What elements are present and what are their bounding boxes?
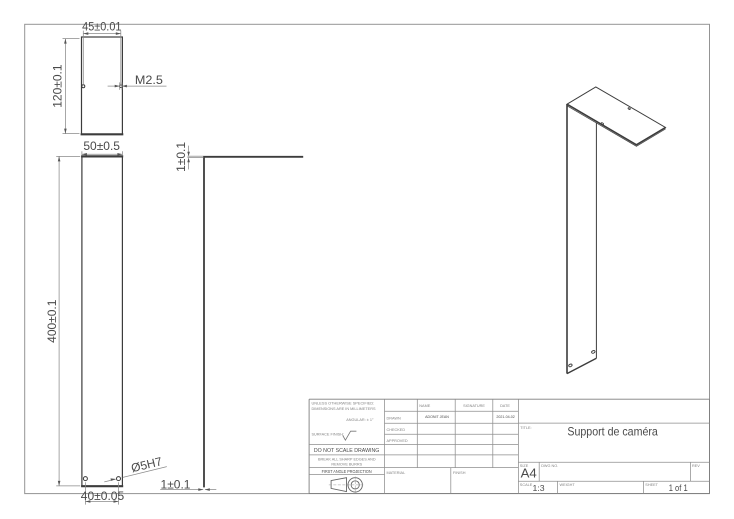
svg-text:MATERIAL: MATERIAL (387, 471, 406, 475)
svg-text:40±0.05: 40±0.05 (81, 489, 125, 503)
svg-text:1±0.1: 1±0.1 (161, 478, 191, 492)
svg-text:WEIGHT: WEIGHT (560, 483, 576, 487)
svg-text:SHEET: SHEET (645, 483, 658, 487)
svg-text:DO NOT SCALE DRAWING: DO NOT SCALE DRAWING (314, 448, 380, 454)
svg-text:REMOVE BURRS: REMOVE BURRS (331, 462, 362, 466)
svg-text:APPROVED: APPROVED (387, 439, 408, 443)
svg-text:DATE: DATE (500, 404, 510, 408)
svg-text:DRAWN: DRAWN (387, 417, 401, 421)
svg-text:SURFACE FINISH:: SURFACE FINISH: (312, 432, 345, 436)
svg-text:DWG NO.: DWG NO. (541, 464, 558, 468)
svg-text:FINISH: FINISH (453, 471, 466, 475)
svg-text:Support de caméra: Support de caméra (567, 424, 658, 438)
svg-text:ANGULAR: ± 1°: ANGULAR: ± 1° (346, 418, 374, 422)
svg-text:UNLESS OTHERWISE SPECIFIED:: UNLESS OTHERWISE SPECIFIED: (312, 401, 375, 405)
svg-text:FIRST ANGLE PROJECTION: FIRST ANGLE PROJECTION (322, 469, 372, 474)
svg-text:SIGNATURE: SIGNATURE (463, 404, 485, 408)
svg-text:120±0.1: 120±0.1 (51, 64, 65, 108)
svg-text:1±0.1: 1±0.1 (174, 142, 188, 172)
svg-text:REV: REV (692, 464, 700, 468)
svg-text:TITLE:: TITLE: (520, 426, 531, 430)
svg-text:DIMENSIONS ARE IN MILLIMETERS: DIMENSIONS ARE IN MILLIMETERS (312, 407, 376, 411)
svg-text:CHECKED: CHECKED (387, 428, 406, 432)
svg-text:45±0.01: 45±0.01 (82, 19, 122, 33)
svg-text:50±0.5: 50±0.5 (83, 139, 120, 153)
svg-text:1 of 1: 1 of 1 (669, 483, 688, 493)
svg-text:400±0.1: 400±0.1 (45, 299, 59, 343)
svg-text:ADONIT JEAN: ADONIT JEAN (425, 415, 449, 419)
svg-text:NAME: NAME (419, 404, 430, 408)
svg-text:BREAK ALL SHARP EDGES AND: BREAK ALL SHARP EDGES AND (318, 458, 376, 462)
svg-text:SCALE: SCALE (520, 483, 533, 487)
svg-text:A4: A4 (521, 465, 537, 480)
svg-text:M2.5: M2.5 (135, 73, 163, 87)
svg-text:1:3: 1:3 (533, 483, 545, 493)
svg-text:2021-04-02: 2021-04-02 (496, 415, 514, 419)
